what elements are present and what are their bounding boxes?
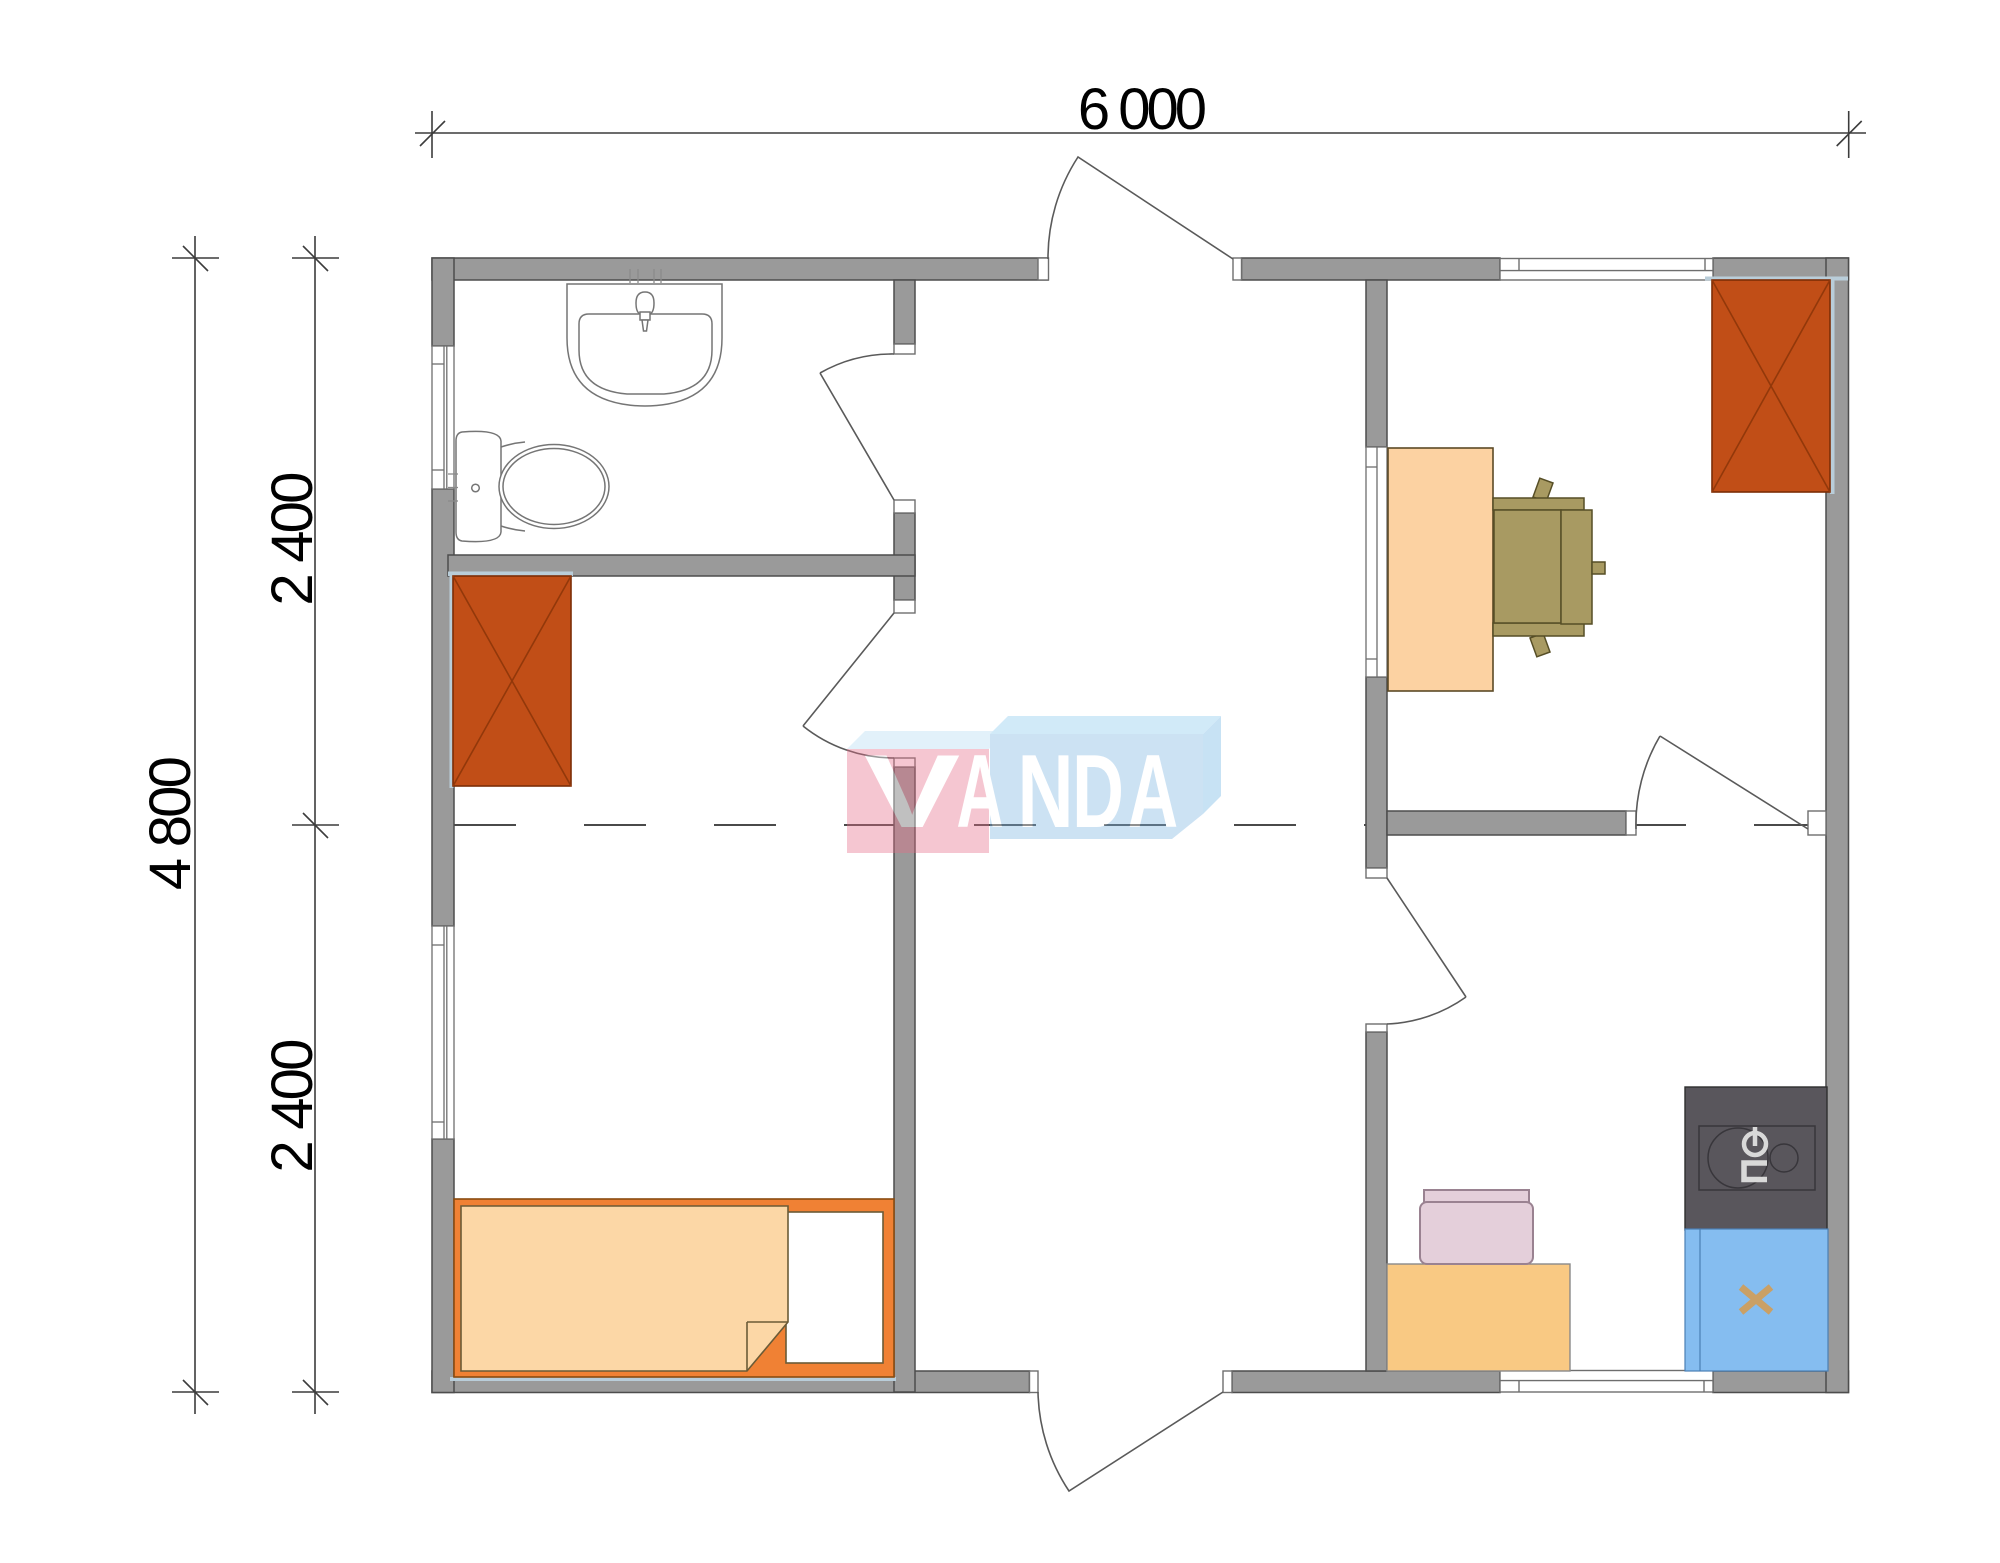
svg-text:V: V	[864, 733, 960, 849]
svg-text:D: D	[1072, 733, 1124, 849]
svg-text:N: N	[1017, 734, 1073, 849]
svg-text:4 800: 4 800	[138, 758, 203, 890]
svg-text:A: A	[1128, 733, 1178, 849]
svg-text:2 400: 2 400	[260, 474, 325, 606]
svg-text:A: A	[956, 734, 1003, 850]
svg-text:2 400: 2 400	[260, 1041, 325, 1173]
svg-text:6 000: 6 000	[1078, 77, 1205, 142]
